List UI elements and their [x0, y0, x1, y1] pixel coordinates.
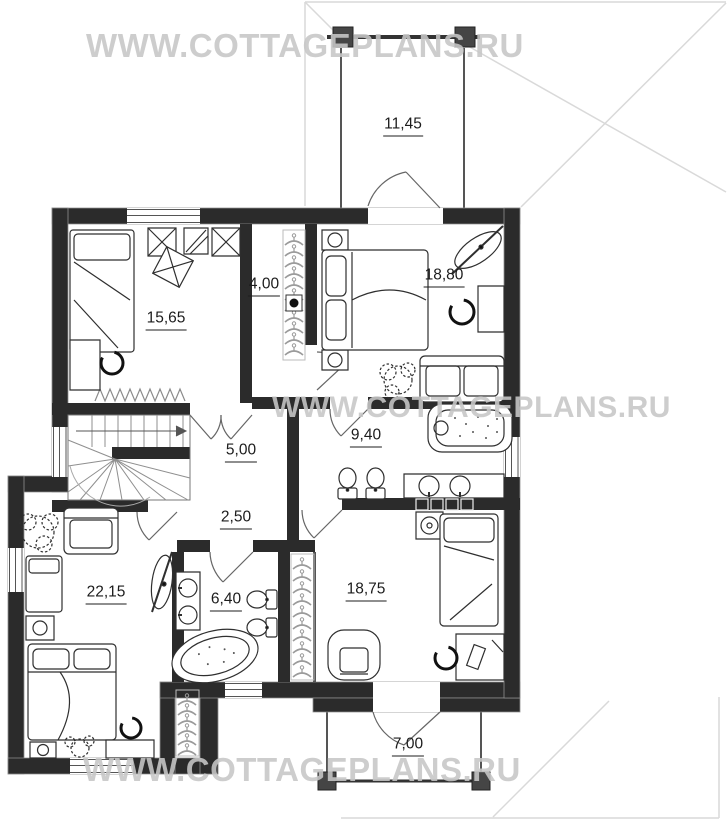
room-area-label-master-bedroom: 18,80: [424, 267, 465, 288]
furniture-closet: [283, 230, 305, 360]
plant: [20, 514, 58, 552]
door: [137, 512, 177, 540]
nightstand: [322, 230, 348, 250]
washing-machine: [416, 512, 443, 539]
bed-double: [28, 644, 116, 740]
desk-chair: [435, 647, 457, 669]
loveseat: [64, 508, 118, 554]
door: [302, 510, 342, 538]
desk-chair: [450, 300, 474, 324]
staircase: [68, 415, 190, 506]
bed-small: [26, 556, 62, 612]
room-area-label-bedroom-left: 22,15: [86, 584, 127, 605]
room-area-label-balcony-top: 11,45: [383, 116, 423, 137]
window: [52, 427, 68, 477]
bed-single: [70, 230, 134, 352]
mirror-line: [152, 552, 172, 612]
watermark-top: WWW.COTTAGEPLANS.RU: [86, 27, 524, 65]
armchair: [328, 630, 380, 680]
nightstand: [26, 616, 54, 640]
door-opening: [368, 208, 443, 224]
desk: [478, 286, 504, 332]
desk: [70, 340, 100, 390]
bed-double: [322, 250, 428, 350]
room-area-label-master-bath: 9,40: [350, 427, 382, 448]
bed-single: [440, 514, 498, 626]
furniture-master-bedroom: [322, 225, 507, 402]
balcony-door: [368, 172, 440, 208]
room-area-label-bathroom: 6,40: [210, 591, 242, 612]
closet-hangers-bottom: [176, 690, 199, 756]
vanity: [404, 474, 504, 498]
watermark-middle: WWW.COTTAGEPLANS.RU: [272, 391, 671, 425]
vent: [286, 295, 302, 311]
floor-plan-page: 11,45 15,65 4,00 18,80 5,00 9,40 2,50 22…: [0, 0, 727, 821]
room-area-label-closet: 4,00: [248, 276, 280, 297]
room-area-label-hall: 5,00: [225, 442, 257, 463]
toilet: [366, 468, 385, 499]
door: [210, 552, 253, 582]
toilet: [247, 590, 277, 609]
closet-hangers-mid: [291, 554, 314, 680]
nightstand: [30, 742, 56, 758]
room-area-label-study-bedroom: 18,75: [346, 581, 387, 602]
watermark-bottom: WWW.COTTAGEPLANS.RU: [83, 751, 521, 789]
nightstand: [322, 350, 348, 370]
room-area-label-corridor: 2,50: [220, 509, 252, 530]
radiator: [95, 389, 185, 401]
door-opening: [373, 682, 440, 712]
sink-counter: [176, 572, 200, 630]
desk: [456, 634, 504, 680]
double-door: [190, 415, 252, 439]
window: [8, 548, 24, 592]
window: [127, 208, 200, 224]
furniture-bedroom-left: [20, 508, 176, 758]
storage-box: [212, 228, 240, 256]
room-area-label-kids-bedroom: 15,65: [146, 310, 187, 331]
desk-chair: [101, 352, 123, 374]
toilet: [338, 468, 357, 499]
dresser: [184, 228, 208, 254]
toilet: [247, 618, 277, 637]
window: [225, 682, 262, 698]
desk-chair: [121, 718, 141, 738]
